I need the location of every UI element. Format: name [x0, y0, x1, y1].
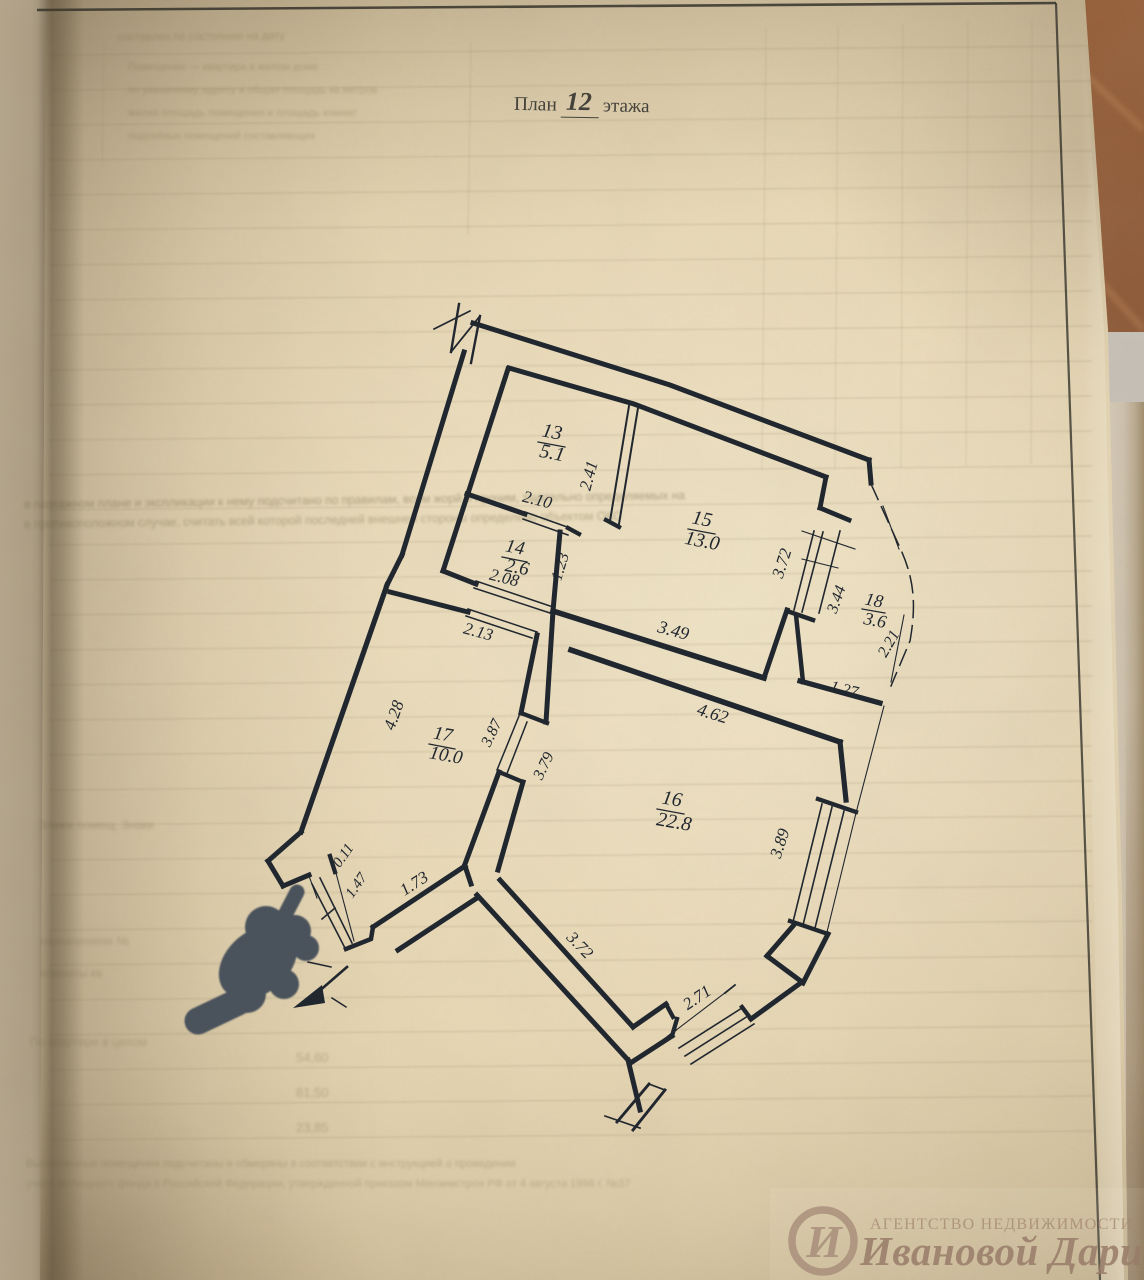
- svg-text:И: И: [805, 1216, 843, 1267]
